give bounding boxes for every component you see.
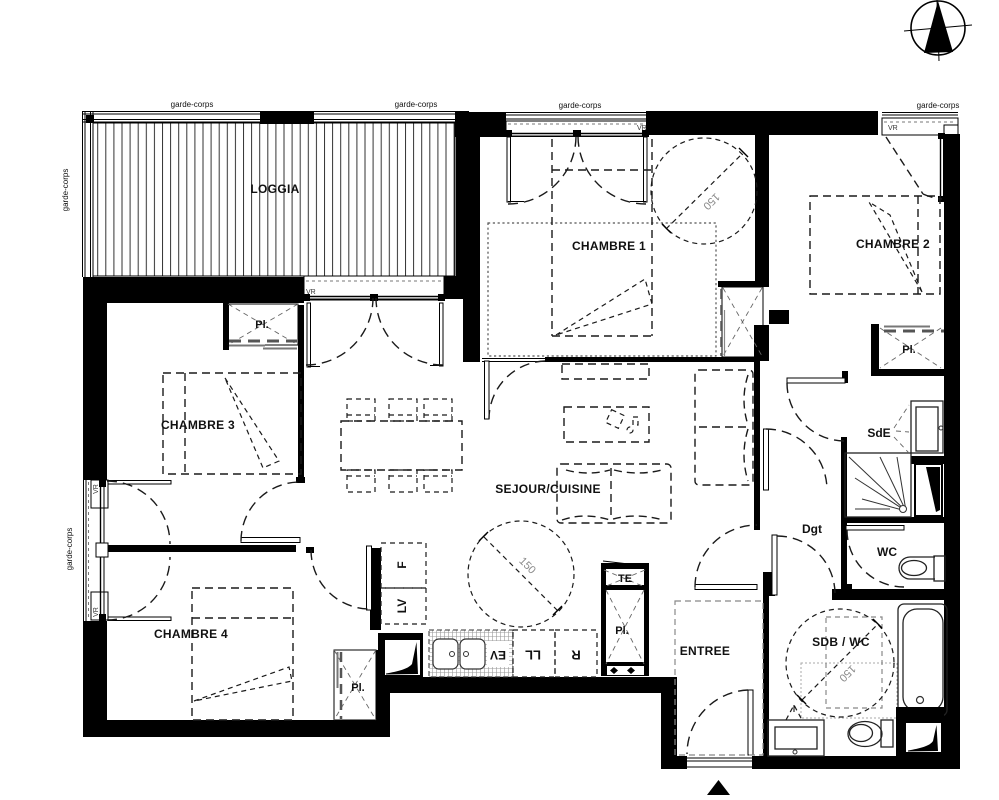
svg-text:R: R — [571, 648, 581, 663]
svg-text:CHAMBRE 1: CHAMBRE 1 — [572, 239, 646, 253]
svg-text:SdE: SdE — [867, 426, 890, 440]
svg-text:garde-corps: garde-corps — [395, 100, 438, 109]
svg-text:F: F — [395, 561, 409, 568]
svg-text:Pl.: Pl. — [351, 682, 364, 694]
svg-text:SDB / WC: SDB / WC — [812, 635, 870, 649]
svg-text:garde-corps: garde-corps — [917, 101, 960, 110]
svg-text:CHAMBRE 2: CHAMBRE 2 — [856, 237, 930, 251]
svg-text:ENTREE: ENTREE — [680, 644, 730, 658]
svg-text:Pl.: Pl. — [615, 625, 628, 637]
svg-text:garde-corps: garde-corps — [171, 100, 214, 109]
svg-text:VR: VR — [93, 607, 100, 617]
svg-text:garde-corps: garde-corps — [559, 101, 602, 110]
svg-text:WC: WC — [877, 545, 897, 559]
svg-text:CHAMBRE 4: CHAMBRE 4 — [154, 627, 228, 641]
svg-text:garde-corps: garde-corps — [61, 169, 70, 212]
svg-text:Dgt: Dgt — [802, 522, 822, 536]
svg-text:CHAMBRE 3: CHAMBRE 3 — [161, 418, 235, 432]
svg-text:LV: LV — [395, 599, 409, 613]
svg-text:LL: LL — [525, 648, 541, 663]
svg-text:VR: VR — [93, 484, 100, 494]
svg-text:Pl.: Pl. — [255, 319, 268, 331]
svg-text:SEJOUR/CUISINE: SEJOUR/CUISINE — [495, 482, 601, 496]
svg-text:LOGGIA: LOGGIA — [250, 182, 299, 196]
svg-text:garde-corps: garde-corps — [65, 528, 74, 571]
svg-text:TE: TE — [618, 573, 632, 585]
svg-text:EV: EV — [490, 648, 506, 662]
svg-text:VR: VR — [888, 125, 898, 132]
svg-text:Pl.: Pl. — [902, 344, 915, 356]
